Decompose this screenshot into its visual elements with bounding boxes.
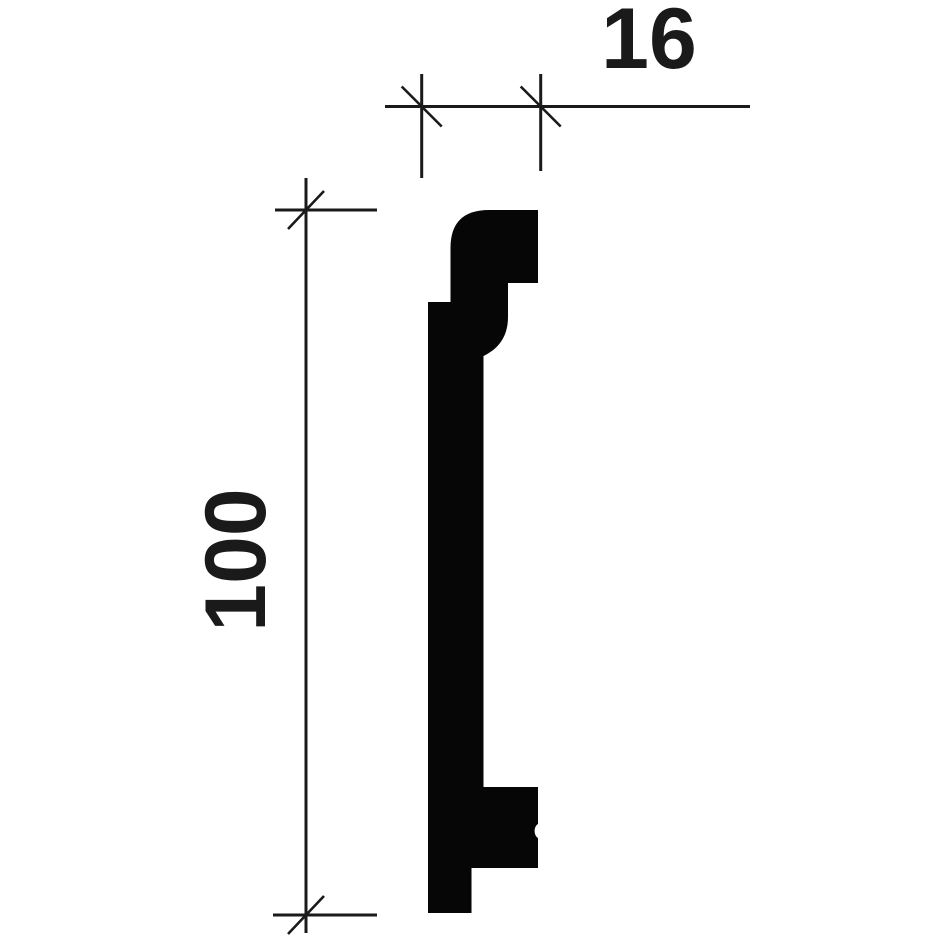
drawing-canvas: 16 100 [0,0,940,940]
width-dimension-label: 16 [601,0,697,87]
profile-drawing-svg: 16 100 [0,0,940,940]
height-dimension-label: 100 [188,488,284,632]
